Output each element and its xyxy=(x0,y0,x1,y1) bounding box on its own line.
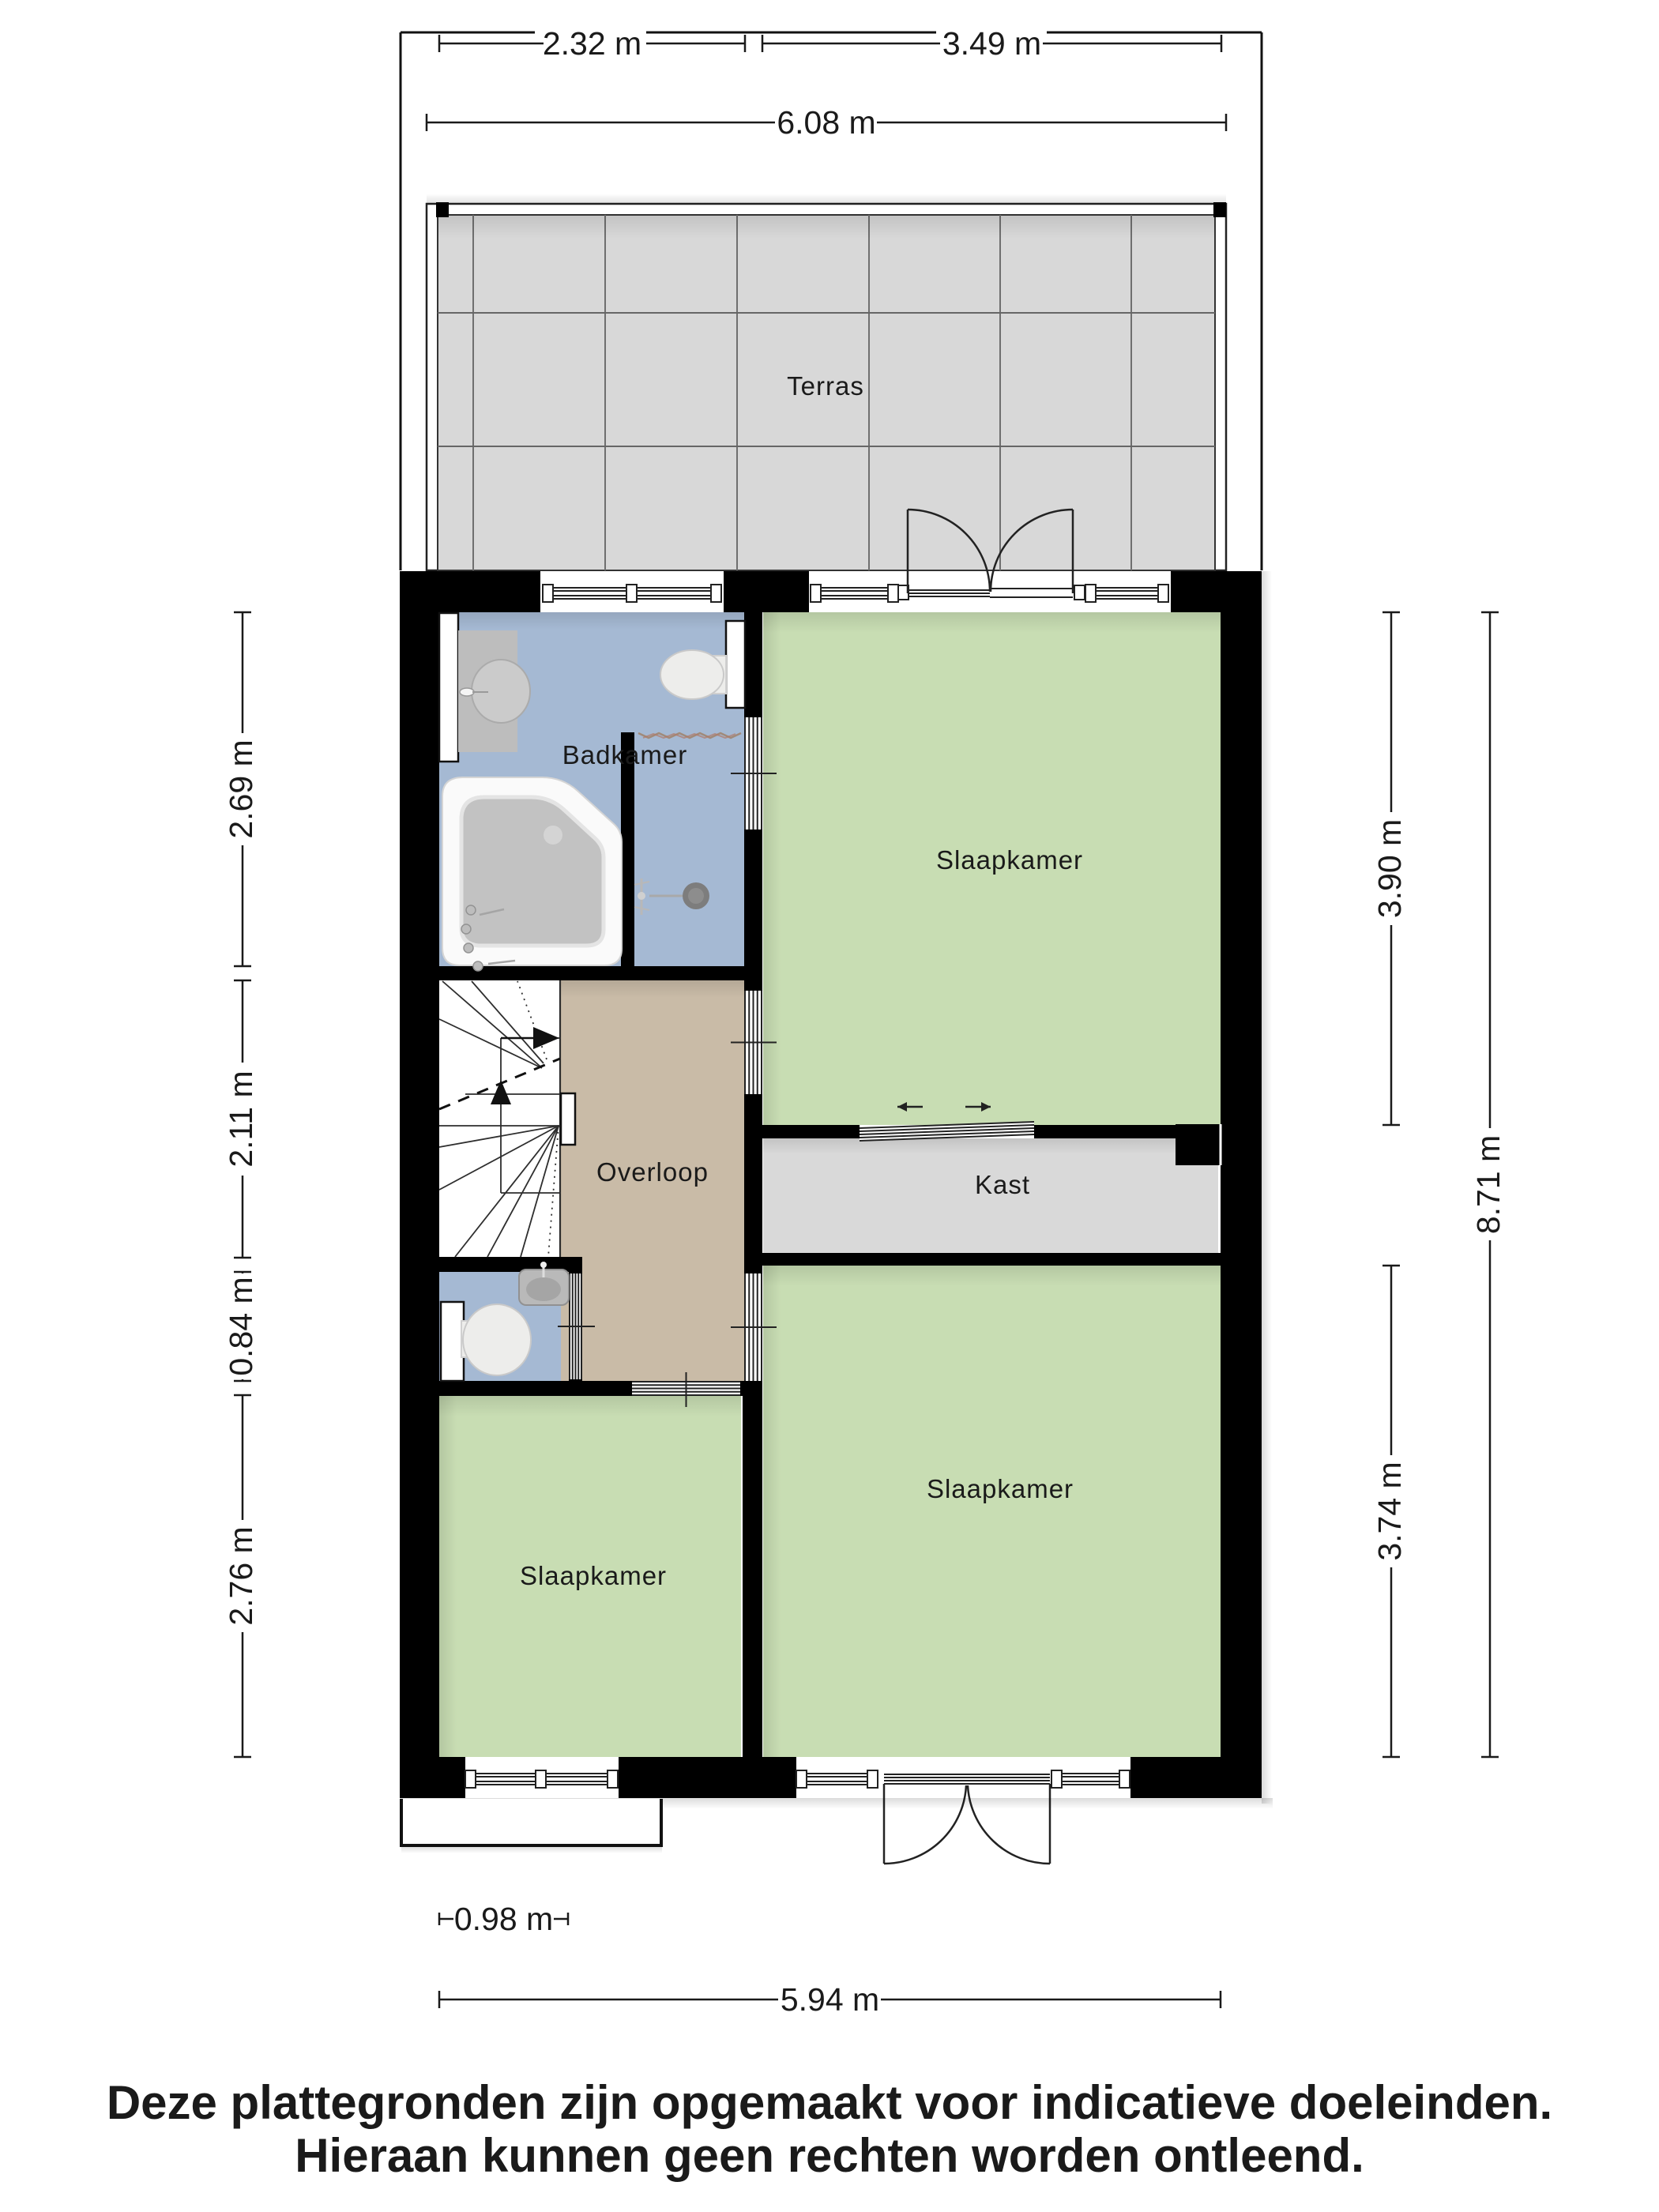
svg-text:Slaapkamer: Slaapkamer xyxy=(936,845,1083,875)
svg-text:Overloop: Overloop xyxy=(596,1157,709,1187)
svg-text:Kast: Kast xyxy=(975,1170,1030,1199)
svg-text:Terras: Terras xyxy=(787,371,864,401)
svg-text:3.49 m: 3.49 m xyxy=(942,25,1041,62)
svg-text:3.90 m: 3.90 m xyxy=(1371,819,1408,918)
svg-text:0.84 m: 0.84 m xyxy=(223,1277,259,1375)
svg-text:2.69 m: 2.69 m xyxy=(223,739,259,838)
svg-text:Hieraan kunnen geen rechten wo: Hieraan kunnen geen rechten worden ontle… xyxy=(295,2129,1364,2182)
svg-text:Badkamer: Badkamer xyxy=(562,740,687,769)
svg-text:6.08 m: 6.08 m xyxy=(777,104,875,141)
svg-text:5.94 m: 5.94 m xyxy=(781,1981,879,2018)
svg-text:Deze plattegronden zijn opgema: Deze plattegronden zijn opgemaakt voor i… xyxy=(107,2076,1552,2129)
svg-text:2.76 m: 2.76 m xyxy=(223,1526,259,1625)
svg-text:Slaapkamer: Slaapkamer xyxy=(520,1561,667,1590)
svg-text:2.32 m: 2.32 m xyxy=(543,25,641,62)
svg-text:8.71 m: 8.71 m xyxy=(1470,1135,1507,1234)
svg-text:3.74 m: 3.74 m xyxy=(1371,1461,1408,1560)
svg-text:Slaapkamer: Slaapkamer xyxy=(927,1474,1074,1503)
svg-text:2.11 m: 2.11 m xyxy=(223,1070,259,1167)
svg-text:0.98 m: 0.98 m xyxy=(454,1901,553,1937)
